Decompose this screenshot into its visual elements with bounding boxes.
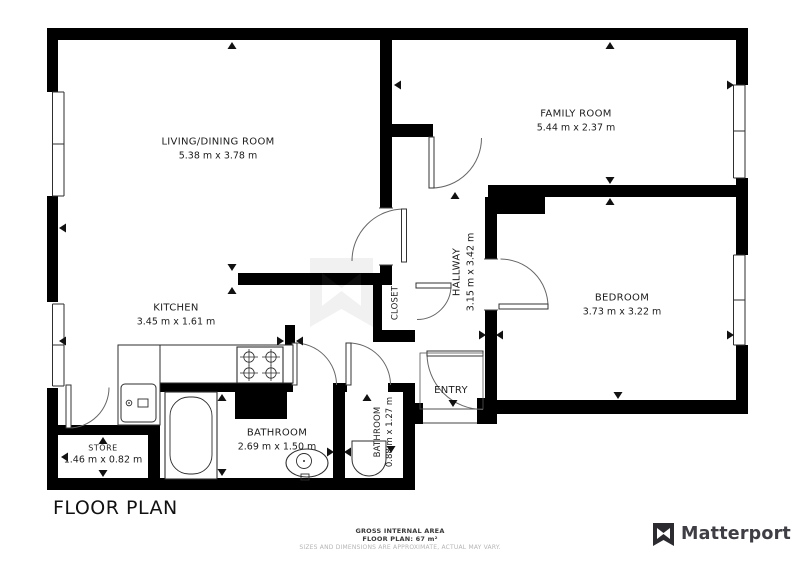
room-name: STORE (64, 444, 143, 454)
label-family-room: FAMILY ROOM 5.44 m x 2.37 m (537, 108, 616, 133)
label-bathroom2: BATHROOM 0.88 m x 1.27 m (373, 397, 395, 467)
bathtub-icon (165, 392, 217, 479)
room-name: FAMILY ROOM (537, 108, 616, 121)
room-name: LIVING/DINING ROOM (161, 136, 274, 149)
door-closet (416, 283, 451, 320)
floor-plan-drawing (0, 0, 800, 566)
matterport-branding: Matterport (653, 522, 791, 546)
room-name: BATHROOM (238, 427, 317, 440)
room-dims: 3.15 m x 3.42 m (465, 233, 477, 312)
matterport-logo-text: Matterport (681, 524, 791, 544)
matterport-logo-icon (653, 522, 674, 546)
room-dims: 5.44 m x 2.37 m (537, 122, 616, 134)
label-living-room: LIVING/DINING ROOM 5.38 m x 3.78 m (161, 136, 274, 161)
room-dims: 2.69 m x 1.50 m (238, 441, 317, 453)
window-living-left (53, 92, 65, 196)
room-name: ENTRY (434, 385, 468, 398)
label-store: STORE 1.46 m x 0.82 m (64, 444, 143, 467)
label-bathroom: BATHROOM 2.69 m x 1.50 m (238, 427, 317, 452)
floor-plan-page: LIVING/DINING ROOM 5.38 m x 3.78 m FAMIL… (0, 0, 800, 566)
room-name: HALLWAY (451, 233, 464, 312)
window-family-right (734, 85, 746, 178)
kitchen-sink-icon (121, 384, 156, 422)
label-entry: ENTRY (434, 385, 468, 398)
watermark-icon (310, 258, 373, 327)
stove-icon (237, 347, 283, 383)
toilet-icon (286, 449, 328, 480)
room-name: KITCHEN (137, 302, 216, 315)
room-dims: 0.88 m x 1.27 m (385, 397, 396, 467)
label-kitchen: KITCHEN 3.45 m x 1.61 m (137, 302, 216, 327)
door-kitchen-store-passage (66, 385, 109, 428)
door-living-hallway (352, 209, 407, 262)
room-name: BEDROOM (583, 292, 662, 305)
window-bedroom-right (734, 255, 746, 345)
floor-plan-area: FLOOR PLAN: 67 m² (299, 535, 500, 543)
footer-notes: GROSS INTERNAL AREA FLOOR PLAN: 67 m² SI… (299, 527, 500, 552)
label-hallway: HALLWAY 3.15 m x 3.42 m (451, 233, 476, 312)
door-bedroom (499, 259, 548, 309)
door-bathroom2 (346, 343, 391, 385)
gross-internal-area-label: GROSS INTERNAL AREA (299, 527, 500, 535)
label-closet: CLOSET (391, 286, 402, 320)
label-bedroom: BEDROOM 3.73 m x 3.22 m (583, 292, 662, 317)
room-dims: 3.73 m x 3.22 m (583, 306, 662, 318)
page-title: FLOOR PLAN (53, 497, 178, 519)
window-kitchen-left (53, 304, 65, 386)
room-dims: 1.46 m x 0.82 m (64, 455, 143, 467)
room-name: CLOSET (391, 286, 402, 320)
door-bathroom (292, 343, 337, 385)
door-family-room (429, 137, 482, 188)
room-dims: 3.45 m x 1.61 m (137, 316, 216, 328)
disclaimer-text: SIZES AND DIMENSIONS ARE APPROXIMATE, AC… (299, 544, 500, 552)
room-name: BATHROOM (373, 397, 384, 467)
room-dims: 5.38 m x 3.78 m (161, 150, 274, 162)
